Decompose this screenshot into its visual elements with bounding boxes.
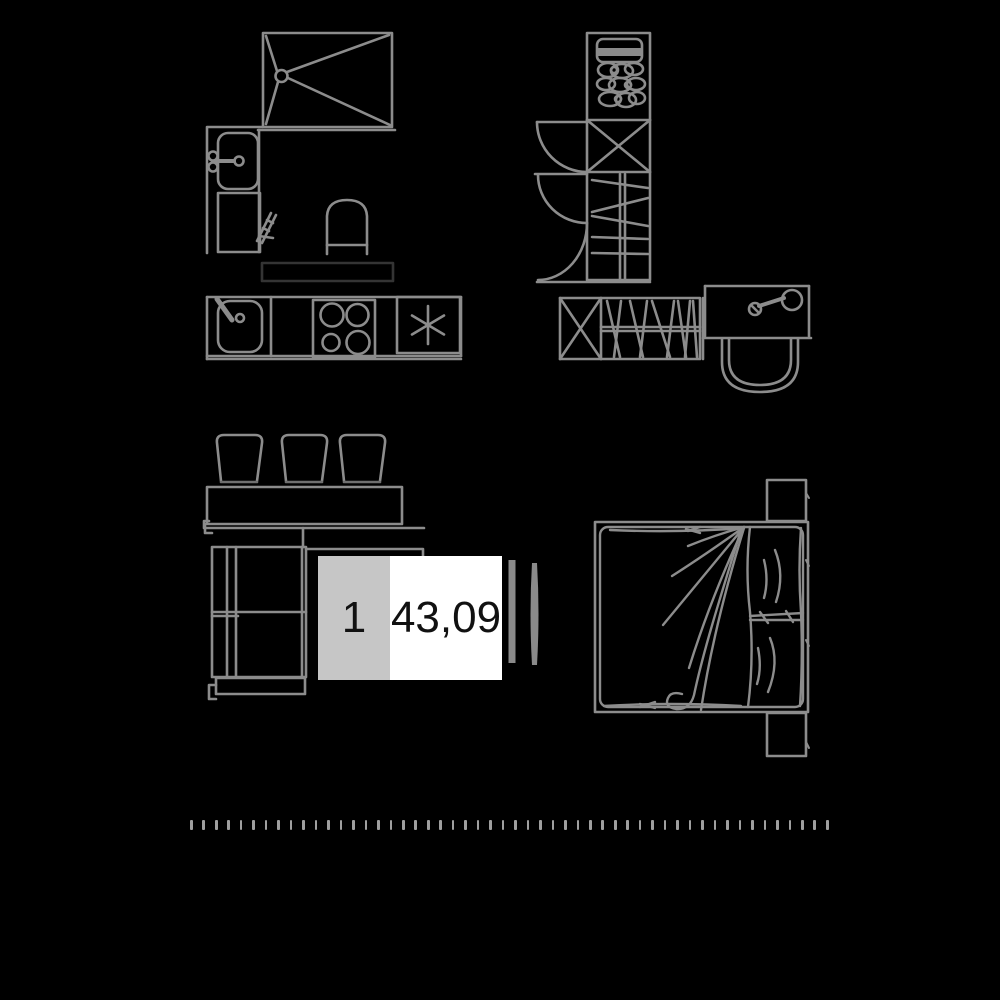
washbasin-icon xyxy=(207,127,262,253)
door-swing-arc xyxy=(535,122,587,280)
storage-boxes-icon xyxy=(217,435,385,482)
unit-area-cell: 43,09 xyxy=(390,556,502,680)
pillows-icon xyxy=(748,527,804,707)
shower-tray-icon xyxy=(258,33,395,130)
hanging-section xyxy=(592,174,648,280)
low-wardrobe-hangers-icon xyxy=(560,298,703,359)
crossed-compartment xyxy=(587,120,650,172)
corner-sofa-icon xyxy=(209,547,306,699)
door-panel-bars xyxy=(509,560,539,665)
bathroom-cabinet-icon xyxy=(218,193,260,252)
bedpost-bottom xyxy=(767,713,806,756)
unit-number-cell: 1 xyxy=(318,556,390,680)
cooktop-icon xyxy=(313,300,375,357)
duvet-folds-icon xyxy=(604,527,744,710)
floor-plan-canvas xyxy=(0,0,1000,1000)
linen-rolls-icon xyxy=(597,39,645,107)
worktop-outline xyxy=(262,263,393,281)
scale-bar xyxy=(190,820,829,830)
double-bed-icon xyxy=(595,480,809,756)
floor-plan-stage: 1 43,09 xyxy=(0,0,1000,1000)
toilet-icon xyxy=(327,200,367,254)
bedpost-top xyxy=(767,480,806,521)
kitchen-sink-icon xyxy=(217,299,262,352)
shelf-counter-icon xyxy=(205,487,402,533)
washstand-faucet-icon xyxy=(705,286,809,336)
fridge-snowflake-icon xyxy=(397,297,460,353)
unit-number: 1 xyxy=(342,596,366,640)
washstand-basin-icon xyxy=(703,338,811,392)
unit-area: 43,09 xyxy=(391,596,501,640)
